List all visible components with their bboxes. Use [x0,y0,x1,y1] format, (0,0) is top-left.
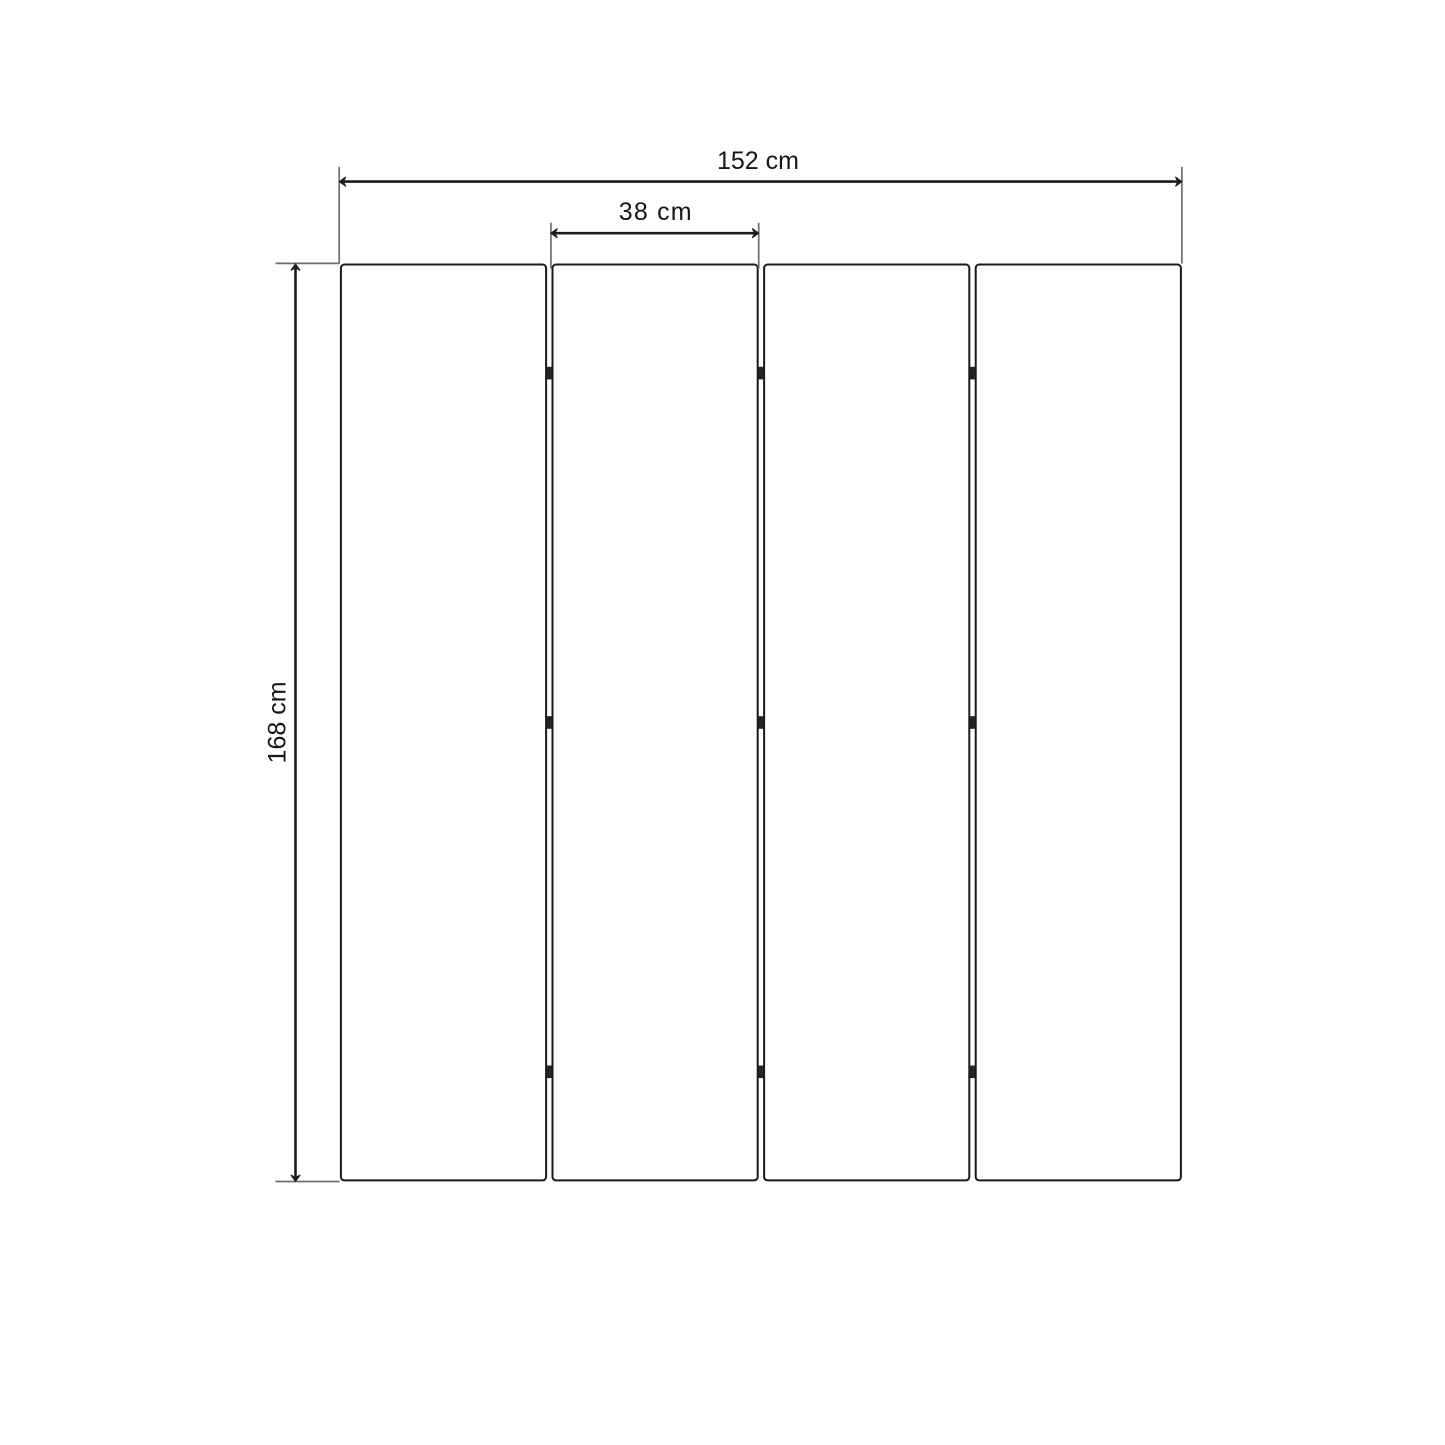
svg-text:38 cm: 38 cm [619,198,693,226]
svg-text:168 cm: 168 cm [264,681,292,763]
svg-text:152 cm: 152 cm [717,147,799,175]
